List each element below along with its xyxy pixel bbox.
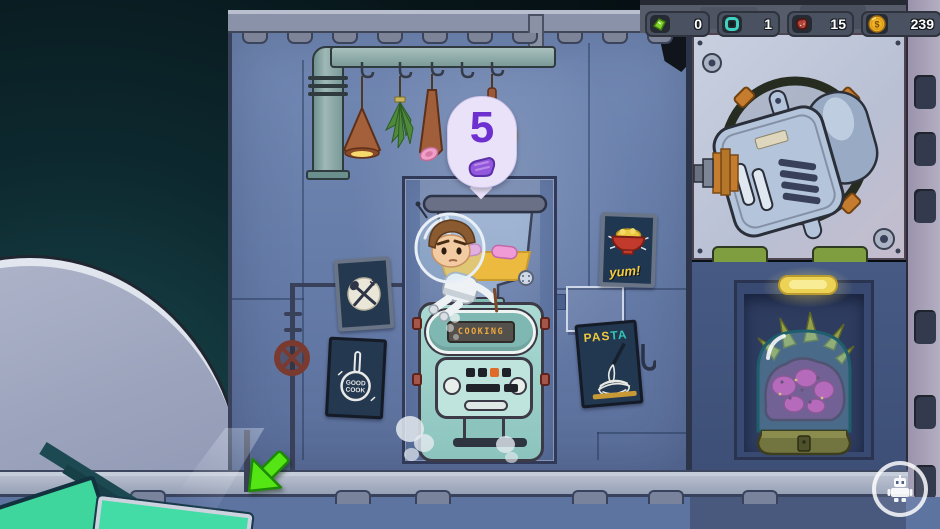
strip-handle [914,395,936,429]
conduit-tick [284,328,302,332]
ceiling-tab [422,33,448,44]
machine-button[interactable] [490,368,499,377]
conduit-tick [284,312,302,316]
robot-icon [886,475,914,503]
ceiling-tab [467,33,493,44]
yum-caption: yum! [609,263,641,280]
ring-count: 1 [764,16,772,32]
hud-counter-crystals[interactable]: 0 [645,11,710,37]
floor-tab [415,490,451,504]
hud-counter-rings[interactable]: 1 [717,11,780,37]
meat-icon [792,15,812,33]
hud-bar: 0 1 15 $ 239 [645,11,940,37]
engine[interactable] [692,33,906,260]
svg-text:$: $ [874,20,879,30]
fork-noodles-icon [584,341,641,401]
ceiling-tab [512,33,538,44]
thought-bubble: 5 [447,96,517,188]
ceiling-tab [602,33,628,44]
noodle-bowl-icon [603,218,653,266]
machine-hinge [540,317,550,330]
purple-food-icon [466,155,498,179]
ceiling-tab [557,33,583,44]
machine-slot [466,384,500,392]
svg-text:COOK: COOK [345,386,365,394]
crystal-count: 0 [694,16,702,32]
robot-button[interactable] [872,461,928,517]
strip-handle [914,310,936,344]
wall-seam [588,43,590,288]
machine-bottom-slot [453,438,527,447]
plant-jar[interactable] [752,286,856,456]
floor-tab [335,490,371,504]
frying-pan-icon: GOOD COOK [332,345,379,411]
machine-hinge [540,373,550,386]
crystal-icon [650,15,670,33]
coin-icon: $ [866,14,888,34]
machine-slot [504,384,518,392]
top-hull-band [228,10,692,33]
machine-knob[interactable] [443,377,461,395]
wall-seam [597,432,599,460]
room-left-edge [228,33,232,470]
machine-button[interactable] [466,368,475,377]
ceiling-tab [287,33,313,44]
lower-wall-right [690,497,906,529]
astronaut-character [405,198,505,343]
floor-tab [742,490,778,504]
herb-bunch [386,102,413,148]
ceiling-tab [332,33,358,44]
wall-seam [597,432,688,434]
steam-puff [496,436,515,453]
ceiling-tab [242,33,268,44]
strip-handle [914,75,936,109]
steam-puff [404,448,419,461]
steam-puff [505,452,518,463]
poster-utensils [334,256,395,332]
hud-counter-food[interactable]: 15 [787,11,854,37]
poster-pasta: PASTA [574,319,643,408]
machine-label-pill [464,400,508,411]
wall-hook [638,344,656,376]
strip-handle [914,189,936,223]
hud-counter-coins[interactable]: $ 239 [861,11,940,37]
machine-button[interactable] [502,368,511,377]
valve-wheel[interactable] [274,340,310,376]
floor-tab [572,490,608,504]
ring-icon [722,15,742,33]
poster-good-cook: GOOD COOK [325,337,387,420]
machine-hinge [412,373,422,386]
ceiling-tab [377,33,403,44]
game-scene: GOOD COOK yum! PASTA [0,0,940,529]
bubble-count: 5 [448,103,516,153]
food-count: 15 [830,16,846,32]
machine-button[interactable] [478,368,487,377]
tutorial-arrow[interactable] [235,443,297,505]
wall-seam [302,60,304,460]
machine-panel [435,357,533,419]
floor-tab [648,490,684,504]
coin-count: 239 [911,16,934,32]
fork-spoon-icon [343,273,386,316]
strip-handle [914,132,936,166]
poster-yum: yum! [599,212,658,288]
